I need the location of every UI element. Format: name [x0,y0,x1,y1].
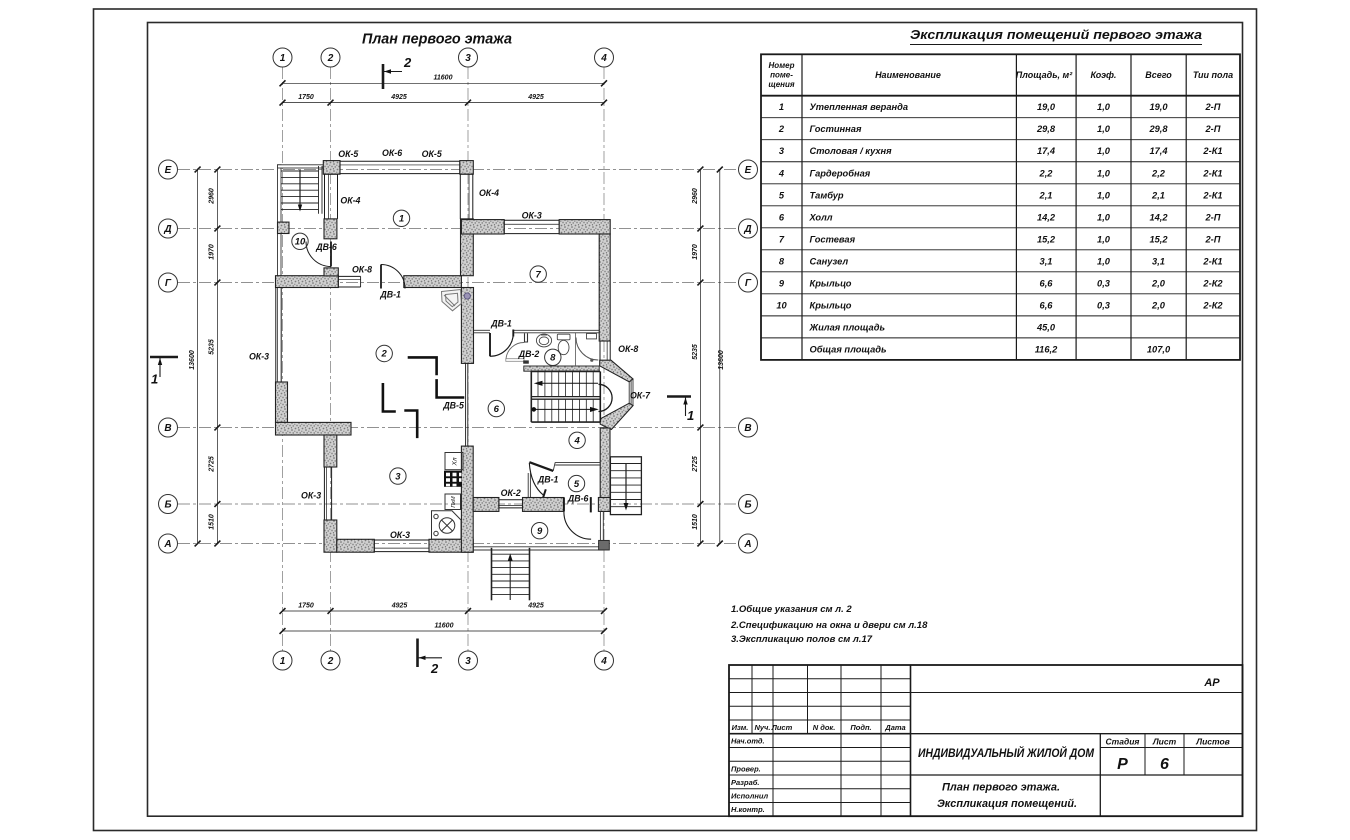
svg-text:2: 2 [327,53,334,64]
svg-text:2960: 2960 [209,188,216,205]
svg-text:2-К1: 2-К1 [1202,146,1222,156]
svg-text:Изм.: Изм. [732,723,749,732]
svg-text:1: 1 [687,408,694,423]
svg-text:45,0: 45,0 [1036,322,1056,332]
svg-text:3: 3 [465,656,471,667]
svg-text:6: 6 [1160,756,1169,773]
svg-text:Столовая / кухня: Столовая / кухня [810,146,893,156]
svg-text:1,0: 1,0 [1097,102,1111,112]
svg-text:В: В [744,423,751,434]
svg-text:29,8: 29,8 [1036,124,1056,134]
svg-text:Коэф.: Коэф. [1091,70,1117,80]
svg-text:Е: Е [165,165,172,176]
svg-text:Стадия: Стадия [1106,737,1140,747]
svg-text:Nуч.: Nуч. [754,723,770,732]
svg-text:ОК-3: ОК-3 [301,490,321,500]
svg-text:АР: АР [1203,677,1220,689]
svg-text:Крыльцо: Крыльцо [810,278,852,288]
svg-text:2-П: 2-П [1205,212,1221,222]
svg-text:ОК-4: ОК-4 [340,196,360,206]
svg-text:107,0: 107,0 [1147,344,1171,354]
svg-text:5235: 5235 [209,339,216,355]
svg-text:1,0: 1,0 [1097,212,1111,222]
svg-text:Тии пола: Тии пола [1193,70,1233,80]
svg-text:1: 1 [280,53,286,64]
svg-text:1750: 1750 [298,94,314,101]
svg-text:11600: 11600 [434,75,453,82]
svg-text:1: 1 [779,102,784,112]
svg-text:ДВ-1: ДВ-1 [537,475,559,485]
svg-text:ДВ-6: ДВ-6 [315,242,337,252]
svg-text:Е: Е [745,165,752,176]
svg-text:ОК-2: ОК-2 [501,488,521,498]
svg-text:4925: 4925 [391,603,408,610]
svg-text:3,1: 3,1 [1040,256,1053,266]
svg-text:1510: 1510 [209,514,216,530]
svg-text:2,0: 2,0 [1151,278,1166,288]
svg-text:15,2: 15,2 [1037,234,1056,244]
svg-text:2-К2: 2-К2 [1202,278,1223,288]
svg-text:10: 10 [776,300,787,310]
svg-text:2725: 2725 [209,456,216,473]
svg-text:Д: Д [743,224,751,235]
svg-text:2,2: 2,2 [1151,168,1166,178]
svg-text:Тамбур: Тамбур [810,190,844,200]
svg-text:Санузел: Санузел [810,256,849,266]
svg-text:Нач.отд.: Нач.отд. [731,737,765,746]
svg-text:Утепленная веранда: Утепленная веранда [810,102,909,112]
svg-text:8: 8 [779,256,785,266]
svg-text:1,0: 1,0 [1097,168,1111,178]
svg-text:5235: 5235 [692,344,699,360]
svg-text:Крыльцо: Крыльцо [810,300,852,310]
svg-text:17,4: 17,4 [1037,146,1056,156]
svg-text:Лист: Лист [1152,737,1177,747]
svg-text:0,3: 0,3 [1097,278,1111,288]
svg-text:Площадь, м²: Площадь, м² [1016,70,1073,80]
svg-text:17,4: 17,4 [1149,146,1168,156]
svg-text:15,2: 15,2 [1149,234,1168,244]
svg-text:N док.: N док. [813,723,836,732]
svg-text:ОК-3: ОК-3 [390,530,410,540]
svg-text:2-К1: 2-К1 [1202,168,1222,178]
svg-text:7: 7 [779,234,785,244]
svg-text:3,1: 3,1 [1152,256,1165,266]
svg-text:Д: Д [163,224,171,235]
svg-text:Общая площадь: Общая площадь [810,344,887,354]
svg-text:2,1: 2,1 [1151,190,1165,200]
svg-text:2,0: 2,0 [1151,300,1166,310]
svg-text:5: 5 [779,190,785,200]
svg-text:2: 2 [403,55,412,70]
svg-text:5: 5 [574,479,580,490]
svg-text:19,0: 19,0 [1037,102,1056,112]
svg-text:4925: 4925 [390,94,407,101]
svg-text:4: 4 [778,168,785,178]
svg-text:2: 2 [430,661,439,676]
svg-text:1,0: 1,0 [1097,124,1111,134]
svg-text:1: 1 [280,656,286,667]
svg-text:2: 2 [778,124,785,134]
svg-text:ИНДИВИДУАЛЬНЫЙ ЖИЛОЙ ДОМ: ИНДИВИДУАЛЬНЫЙ ЖИЛОЙ ДОМ [918,744,1095,760]
svg-text:29,8: 29,8 [1148,124,1168,134]
svg-text:19,0: 19,0 [1149,102,1168,112]
svg-text:Гостевая: Гостевая [810,234,856,244]
svg-text:11600: 11600 [435,623,454,630]
svg-text:1,0: 1,0 [1097,234,1111,244]
svg-text:2: 2 [381,349,388,360]
svg-text:Холл: Холл [809,212,833,222]
svg-text:Всего: Всего [1145,70,1172,80]
svg-text:14,2: 14,2 [1037,212,1056,222]
svg-text:Хл: Хл [452,457,459,466]
svg-text:6: 6 [494,404,500,415]
svg-text:А: А [743,539,751,550]
svg-text:1970: 1970 [209,244,216,260]
svg-text:6: 6 [779,212,785,222]
svg-text:Исполнил: Исполнил [731,792,769,801]
svg-text:2,1: 2,1 [1039,190,1053,200]
svg-text:2-К2: 2-К2 [1202,300,1223,310]
svg-text:Наименование: Наименование [875,70,941,80]
svg-text:Экспликация помещений.: Экспликация помещений. [937,798,1077,810]
svg-text:2-П: 2-П [1205,234,1221,244]
svg-text:Р: Р [1117,756,1128,773]
svg-text:ДВ-5: ДВ-5 [442,401,464,411]
svg-text:2-К1: 2-К1 [1202,190,1222,200]
svg-text:Гардеробная: Гардеробная [810,168,871,178]
svg-text:ДВ-2: ДВ-2 [518,349,540,359]
svg-text:1: 1 [151,372,158,387]
svg-text:3: 3 [465,53,471,64]
svg-text:Провер.: Провер. [731,765,761,774]
svg-text:ДВ-1: ДВ-1 [490,318,512,328]
svg-text:Гостинная: Гостинная [810,124,862,134]
svg-text:9: 9 [779,278,785,288]
svg-text:2-П: 2-П [1205,124,1221,134]
svg-text:13600: 13600 [189,350,196,370]
svg-text:2725: 2725 [692,456,699,473]
svg-text:ОК-8: ОК-8 [618,344,638,354]
svg-text:4925: 4925 [527,94,544,101]
svg-text:4: 4 [600,53,607,64]
svg-text:поме-: поме- [770,71,793,80]
svg-text:Номер: Номер [769,61,795,70]
svg-text:щения: щения [768,80,794,89]
svg-text:Лист: Лист [771,723,793,732]
svg-text:6,6: 6,6 [1040,278,1054,288]
svg-text:ОК-3: ОК-3 [249,352,269,362]
svg-text:3: 3 [395,471,401,482]
svg-text:2-П: 2-П [1205,102,1221,112]
svg-text:2-К1: 2-К1 [1202,256,1222,266]
svg-text:Дата: Дата [884,723,905,732]
svg-text:6,6: 6,6 [1040,300,1054,310]
svg-text:ОК-5: ОК-5 [338,149,358,159]
svg-text:116,2: 116,2 [1035,344,1058,354]
svg-text:ДВ-1: ДВ-1 [379,290,401,300]
svg-text:Разраб.: Разраб. [731,778,759,787]
svg-text:ОК-8: ОК-8 [352,265,372,275]
svg-text:1,0: 1,0 [1097,146,1111,156]
svg-text:Экспликация помещений первого: Экспликация помещений первого этажа [910,27,1202,42]
svg-text:8: 8 [550,353,556,364]
svg-text:2.Спецификацию на окна и двери: 2.Спецификацию на окна и двери см л.18 [730,620,928,631]
svg-text:2,2: 2,2 [1039,168,1054,178]
svg-text:Подп.: Подп. [850,723,871,732]
svg-text:План первого этажа: План первого этажа [362,32,512,48]
svg-text:4: 4 [600,656,607,667]
svg-text:ОК-7: ОК-7 [630,391,651,401]
svg-text:Г: Г [165,278,172,289]
svg-text:2960: 2960 [692,188,699,205]
svg-text:Жилая площадь: Жилая площадь [809,322,885,332]
svg-text:ОК-4: ОК-4 [479,188,499,198]
svg-text:1: 1 [399,214,404,225]
svg-text:3: 3 [779,146,785,156]
svg-text:2: 2 [327,656,334,667]
svg-text:1,0: 1,0 [1097,256,1111,266]
svg-text:Листов: Листов [1195,737,1230,747]
svg-text:План первого этажа.: План первого этажа. [942,782,1060,794]
svg-text:0,3: 0,3 [1097,300,1111,310]
svg-text:ДВ-6: ДВ-6 [567,494,589,504]
svg-text:А: А [163,539,171,550]
svg-text:1510: 1510 [692,514,699,530]
svg-text:ОК-6: ОК-6 [382,148,402,158]
svg-text:14,2: 14,2 [1149,212,1168,222]
svg-text:13600: 13600 [718,350,725,370]
svg-text:Н.контр.: Н.контр. [731,805,765,814]
svg-text:4: 4 [573,436,580,447]
svg-text:7: 7 [536,269,542,280]
svg-text:ОК-3: ОК-3 [522,210,542,220]
svg-text:1.Общие указания см л. 2: 1.Общие указания см л. 2 [731,604,852,615]
svg-text:Г: Г [745,278,752,289]
svg-text:Б: Б [164,499,171,510]
svg-text:1970: 1970 [692,244,699,260]
svg-text:ПкМ: ПкМ [451,496,457,508]
svg-text:3.Экспликацию полов см л.17: 3.Экспликацию полов см л.17 [731,634,873,645]
svg-text:1750: 1750 [298,603,314,610]
svg-text:1,0: 1,0 [1097,190,1111,200]
svg-text:ОК-5: ОК-5 [422,149,442,159]
svg-text:9: 9 [537,526,543,537]
svg-text:10: 10 [295,237,306,248]
svg-text:4925: 4925 [527,603,544,610]
svg-text:Б: Б [744,499,751,510]
svg-text:В: В [164,423,171,434]
